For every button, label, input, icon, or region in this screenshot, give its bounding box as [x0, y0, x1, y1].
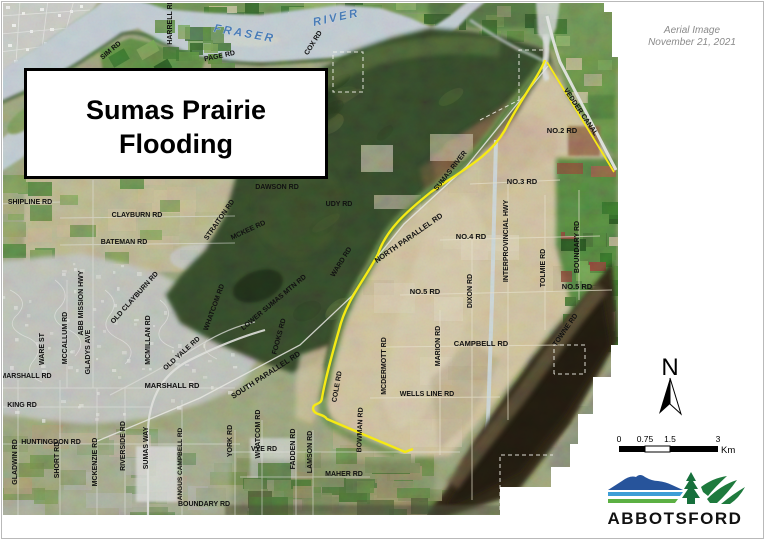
svg-text:SUMAS WAY: SUMAS WAY: [143, 426, 150, 469]
svg-text:FADDEN RD: FADDEN RD: [290, 429, 297, 470]
svg-text:MCMILLAN RD: MCMILLAN RD: [145, 315, 152, 364]
svg-text:MARION RD: MARION RD: [435, 326, 442, 366]
svg-text:N: N: [661, 354, 678, 381]
svg-text:0: 0: [617, 434, 622, 444]
svg-text:VYE RD: VYE RD: [251, 446, 277, 453]
svg-text:HUNTINGDON RD: HUNTINGDON RD: [21, 439, 81, 446]
svg-text:KING RD: KING RD: [7, 402, 37, 409]
svg-text:WELLS LINE RD: WELLS LINE RD: [400, 391, 454, 398]
svg-text:MARSHALL RD: MARSHALL RD: [145, 381, 200, 390]
svg-text:1.5: 1.5: [664, 434, 676, 444]
svg-text:BOUNDARY RD: BOUNDARY RD: [178, 501, 230, 508]
svg-text:NO.2 RD: NO.2 RD: [547, 126, 578, 135]
svg-text:MCDERMOTT RD: MCDERMOTT RD: [381, 337, 388, 395]
svg-text:3: 3: [716, 434, 721, 444]
svg-text:NO.5 RD: NO.5 RD: [410, 287, 441, 296]
svg-text:TOLMIE RD: TOLMIE RD: [540, 249, 547, 287]
svg-text:CAMPBELL RD: CAMPBELL RD: [454, 339, 509, 348]
svg-text:MCKENZIE RD: MCKENZIE RD: [92, 438, 99, 487]
svg-text:SHIPLINE RD: SHIPLINE RD: [8, 199, 52, 206]
svg-text:ABB MISSION HWY: ABB MISSION HWY: [78, 270, 85, 335]
svg-text:UDY RD: UDY RD: [326, 201, 353, 208]
svg-text:ABBOTSFORD: ABBOTSFORD: [608, 509, 743, 528]
svg-text:RIVERSIDE RD: RIVERSIDE RD: [120, 421, 127, 471]
svg-text:INTERPROVINCIAL HWY: INTERPROVINCIAL HWY: [503, 200, 510, 283]
svg-text:MAHER RD: MAHER RD: [325, 471, 363, 478]
svg-text:MARSHALL RD: MARSHALL RD: [0, 373, 51, 380]
svg-text:GLADYS AVE: GLADYS AVE: [85, 329, 92, 374]
svg-text:GLADWIN RD: GLADWIN RD: [12, 439, 19, 485]
svg-text:Km: Km: [721, 445, 735, 456]
svg-text:NO.4 RD: NO.4 RD: [456, 232, 487, 241]
svg-text:SHORT RD: SHORT RD: [54, 442, 61, 479]
svg-text:CLAYBURN RD: CLAYBURN RD: [112, 212, 163, 219]
svg-text:DAWSON RD: DAWSON RD: [255, 184, 299, 191]
svg-text:NO.5 RD: NO.5 RD: [562, 282, 593, 291]
svg-text:NO.3 RD: NO.3 RD: [507, 177, 538, 186]
svg-text:LAMSON RD: LAMSON RD: [307, 431, 314, 473]
svg-text:YORK RD: YORK RD: [227, 425, 234, 457]
svg-text:0.75: 0.75: [637, 434, 654, 444]
svg-text:MCCALLUM RD: MCCALLUM RD: [62, 312, 69, 365]
svg-text:DIXON RD: DIXON RD: [467, 274, 474, 308]
svg-text:BATEMAN RD: BATEMAN RD: [101, 239, 148, 246]
svg-text:HARRELL RD: HARRELL RD: [167, 0, 174, 45]
svg-text:WARE ST: WARE ST: [39, 332, 46, 365]
svg-text:ANGUS CAMPBELL RD: ANGUS CAMPBELL RD: [177, 427, 184, 500]
svg-text:BOUNDARY RD: BOUNDARY RD: [574, 221, 581, 273]
